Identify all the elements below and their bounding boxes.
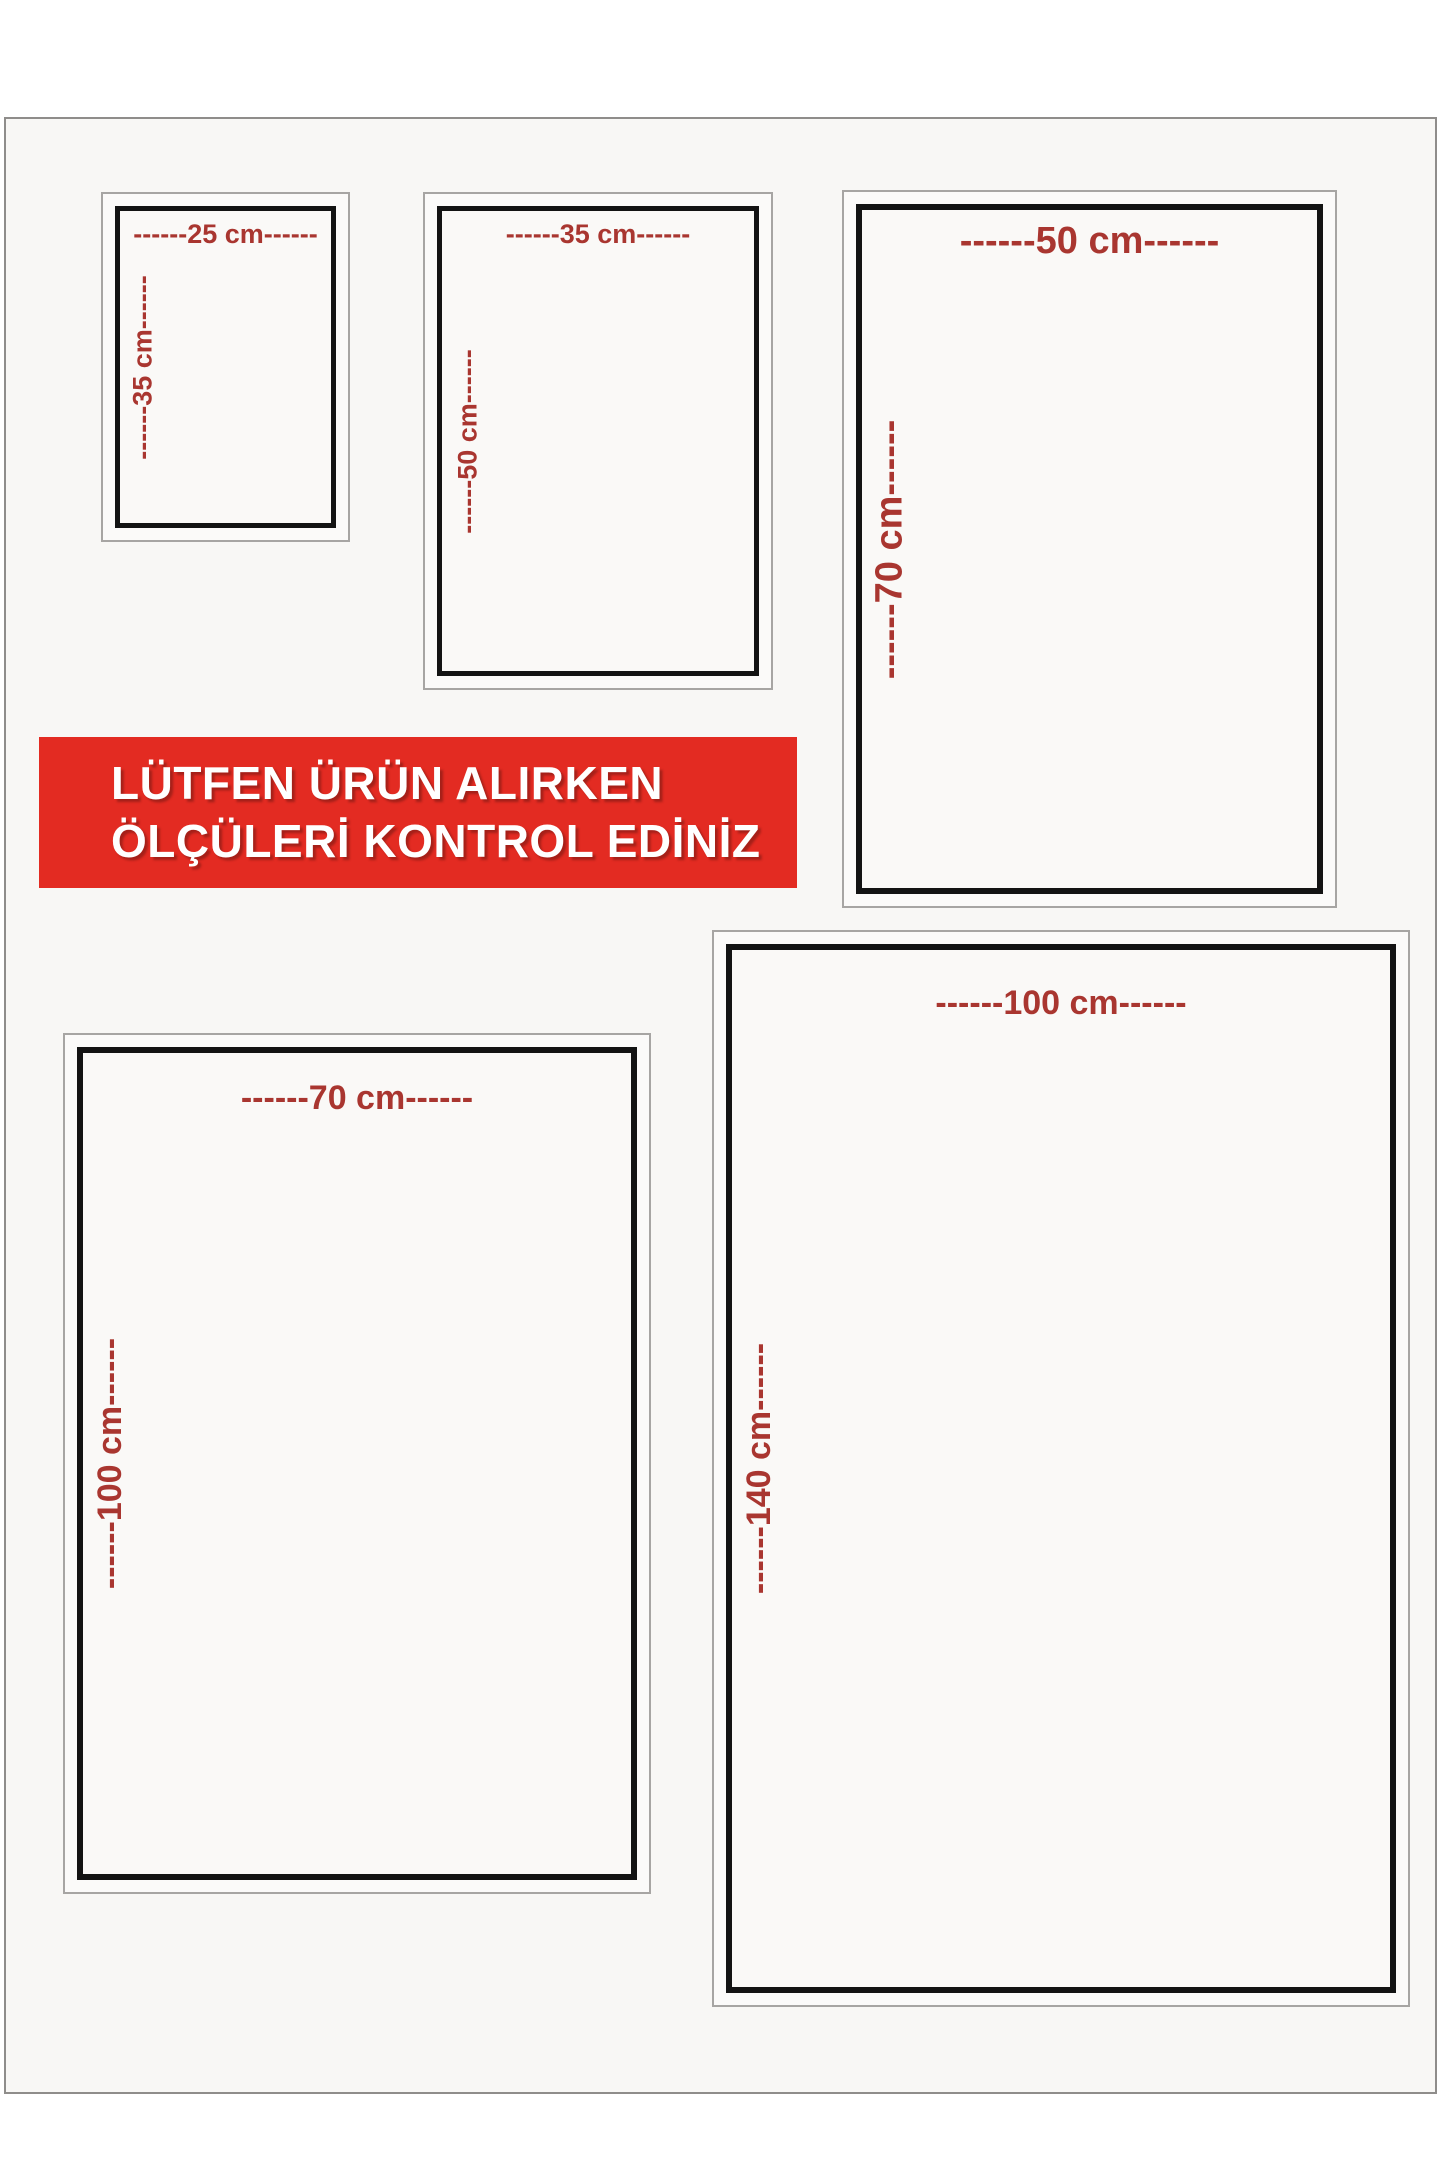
size-box-100x140-border: ------100 cm------ ------140 cm------ xyxy=(726,944,1396,1993)
height-dimension-label-50: ------50 cm------ xyxy=(453,349,484,533)
size-box-50x70: ------50 cm------ ------70 cm------ xyxy=(842,190,1337,908)
size-box-70x100-border: ------70 cm------ ------100 cm------ xyxy=(77,1047,637,1880)
size-box-70x100: ------70 cm------ ------100 cm------ xyxy=(63,1033,651,1894)
size-guide-infographic: ------25 cm------ ------35 cm------ ----… xyxy=(0,0,1440,2160)
size-box-50x70-border: ------50 cm------ ------70 cm------ xyxy=(856,204,1323,894)
height-dimension-label-140: ------140 cm------ xyxy=(741,1343,780,1594)
height-dimension-column-50: ------50 cm------ xyxy=(442,211,494,671)
height-dimension-column-70: ------70 cm------ xyxy=(862,210,918,888)
warning-banner: LÜTFEN ÜRÜN ALIRKEN ÖLÇÜLERİ KONTROL EDİ… xyxy=(39,737,797,888)
warning-banner-line1: LÜTFEN ÜRÜN ALIRKEN xyxy=(111,754,797,812)
warning-banner-line2: ÖLÇÜLERİ KONTROL EDİNİZ xyxy=(111,812,797,870)
size-box-35x50-border: ------35 cm------ ------50 cm------ xyxy=(437,206,759,676)
width-dimension-label-70: ------70 cm------ xyxy=(83,1079,631,1118)
height-dimension-label-100: ------100 cm------ xyxy=(92,1338,131,1589)
size-box-25x35: ------25 cm------ ------35 cm------ xyxy=(101,192,350,542)
height-dimension-label-35: ------35 cm------ xyxy=(128,275,159,459)
size-box-35x50: ------35 cm------ ------50 cm------ xyxy=(423,192,773,690)
height-dimension-column-140: ------140 cm------ xyxy=(732,950,788,1987)
size-box-100x140: ------100 cm------ ------140 cm------ xyxy=(712,930,1410,2007)
width-dimension-label-50: ------50 cm------ xyxy=(862,220,1317,263)
height-dimension-column-100: ------100 cm------ xyxy=(83,1053,139,1874)
height-dimension-label-70: ------70 cm------ xyxy=(869,419,912,679)
width-dimension-label-100: ------100 cm------ xyxy=(732,984,1390,1023)
height-dimension-column-35: ------35 cm------ xyxy=(120,211,166,523)
size-box-25x35-border: ------25 cm------ ------35 cm------ xyxy=(115,206,336,528)
